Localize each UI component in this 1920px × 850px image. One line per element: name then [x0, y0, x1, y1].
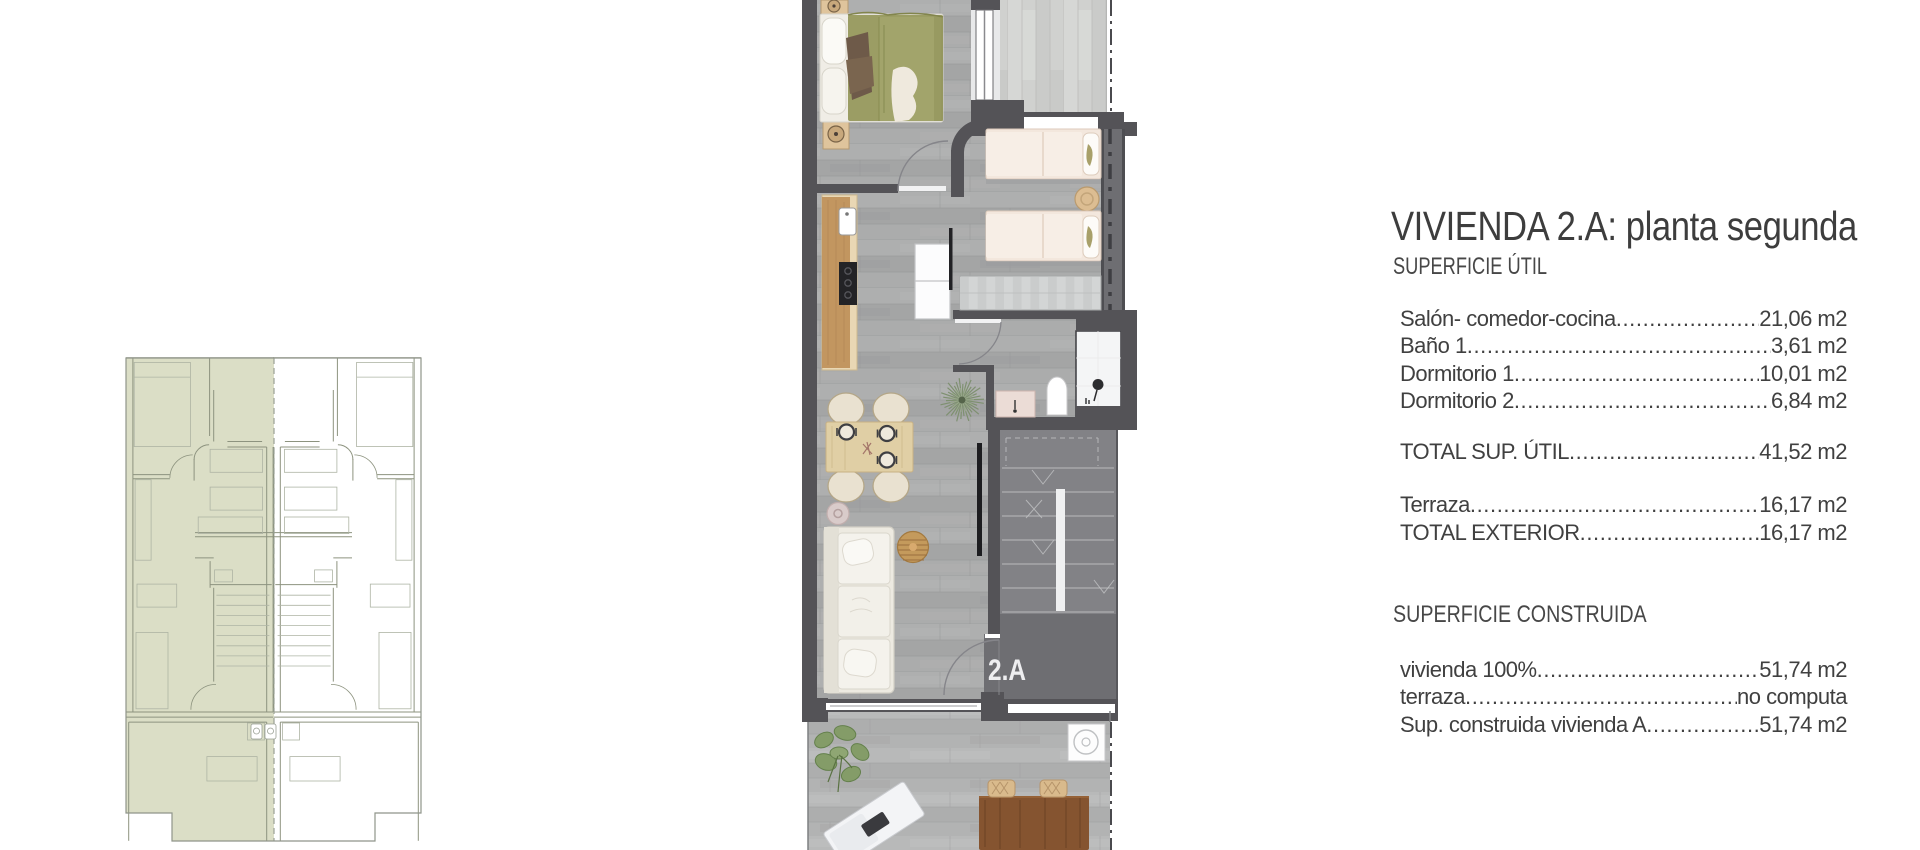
- svg-text:2.A: 2.A: [988, 654, 1026, 687]
